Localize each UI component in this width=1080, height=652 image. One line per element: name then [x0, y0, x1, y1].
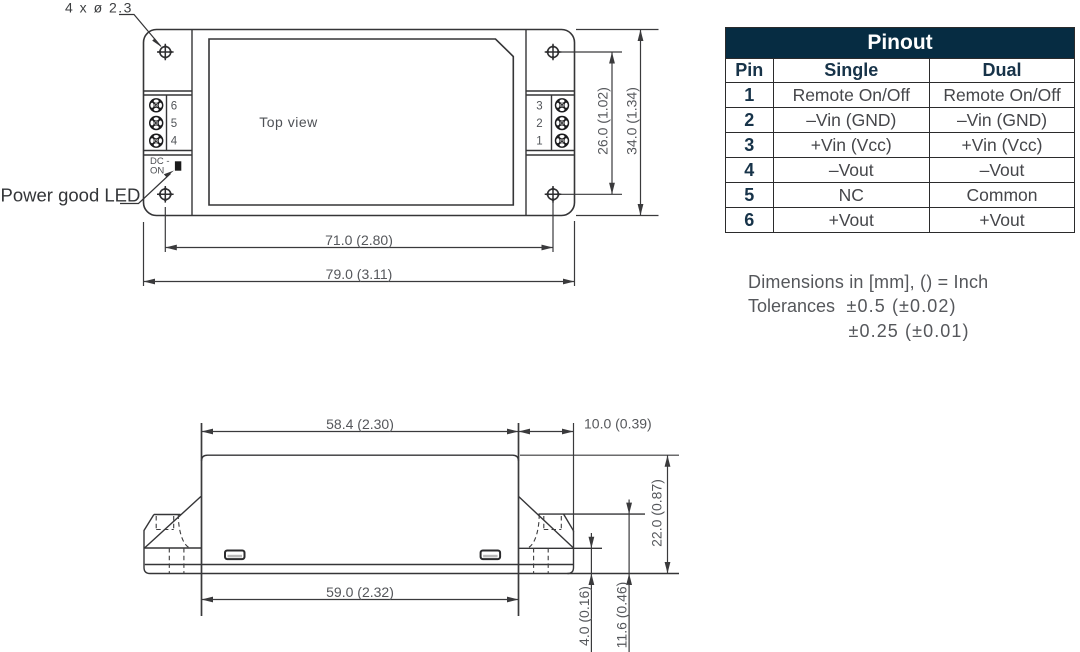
svg-text:5: 5 [171, 118, 177, 130]
svg-text:59.0 (2.32): 59.0 (2.32) [326, 584, 394, 600]
svg-text:6: 6 [171, 100, 177, 112]
svg-text:4: 4 [171, 136, 178, 148]
svg-text:10.0 (0.39): 10.0 (0.39) [584, 416, 652, 432]
svg-text:11.6 (0.46): 11.6 (0.46) [614, 582, 630, 649]
svg-text:22.0 (0.87): 22.0 (0.87) [649, 479, 665, 547]
svg-text:Power good LED: Power good LED [1, 185, 141, 206]
svg-text:71.0 (2.80): 71.0 (2.80) [325, 232, 393, 248]
svg-text:Top view: Top view [259, 114, 318, 130]
svg-text:34.0 (1.34): 34.0 (1.34) [624, 87, 640, 155]
svg-text:ON: ON [150, 165, 164, 176]
svg-text:4 x ø 2.3: 4 x ø 2.3 [65, 0, 133, 16]
svg-text:26.0 (1.02): 26.0 (1.02) [595, 87, 611, 155]
svg-text:3: 3 [536, 100, 542, 112]
svg-text:58.4 (2.30): 58.4 (2.30) [326, 416, 394, 432]
svg-text:79.0 (3.11): 79.0 (3.11) [326, 266, 393, 282]
svg-text:4.0 (0.16): 4.0 (0.16) [576, 586, 592, 646]
svg-text:2: 2 [536, 118, 542, 130]
svg-text:1: 1 [536, 136, 542, 148]
